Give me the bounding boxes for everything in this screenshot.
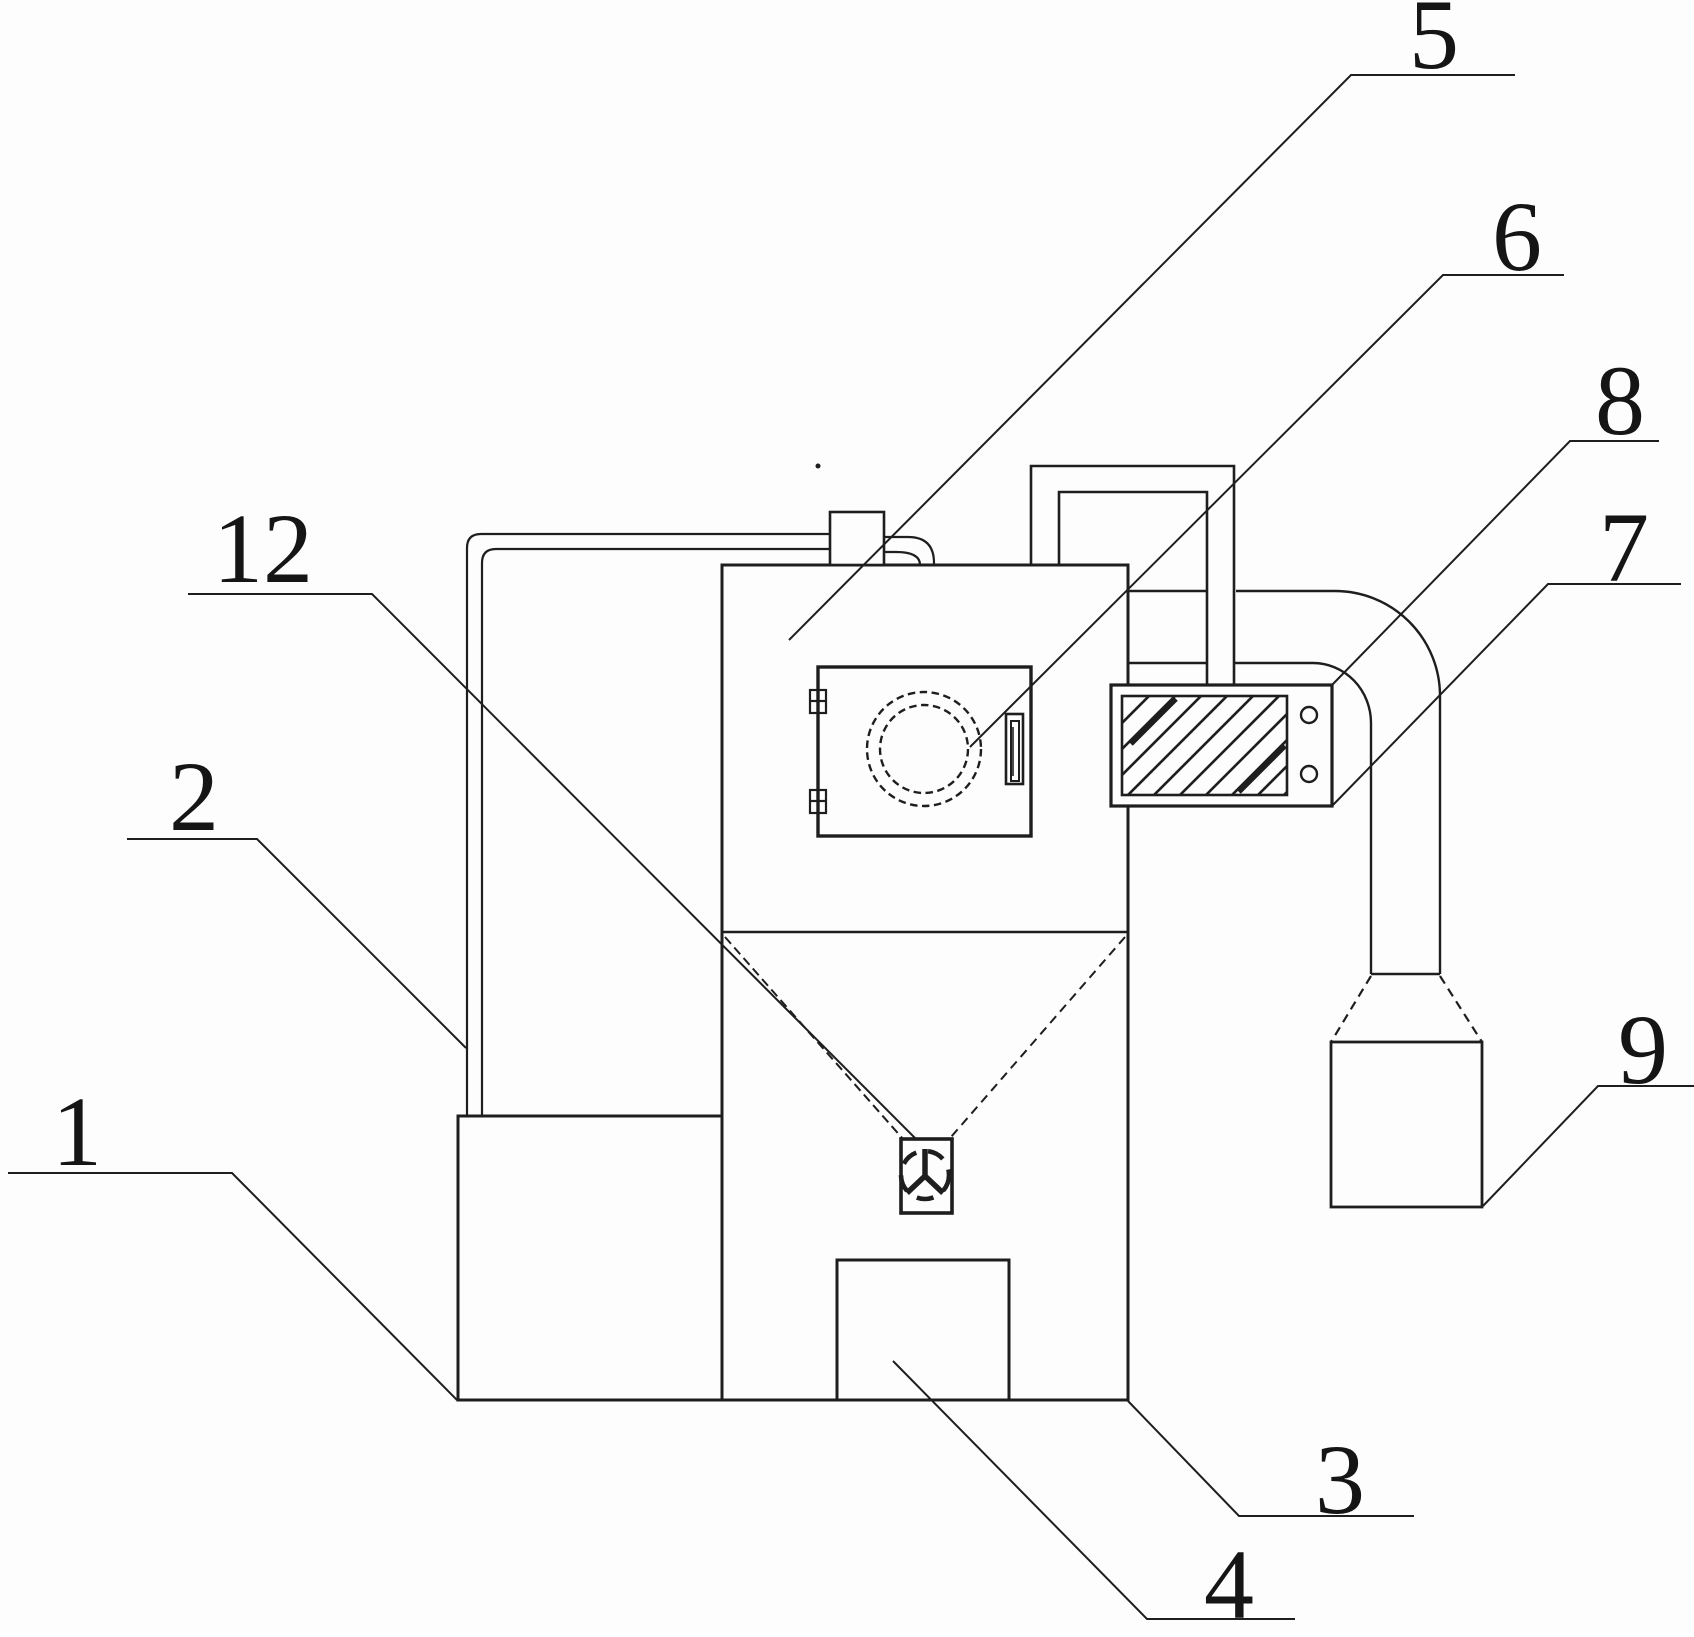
svg-text:5: 5 xyxy=(1409,0,1459,90)
svg-text:2: 2 xyxy=(169,741,219,852)
svg-text:4: 4 xyxy=(1204,1529,1254,1632)
svg-text:12: 12 xyxy=(213,493,313,604)
svg-text:3: 3 xyxy=(1315,1424,1365,1535)
svg-text:7: 7 xyxy=(1599,492,1649,603)
svg-text:1: 1 xyxy=(52,1076,102,1187)
svg-text:8: 8 xyxy=(1595,345,1645,456)
svg-text:9: 9 xyxy=(1618,994,1668,1105)
